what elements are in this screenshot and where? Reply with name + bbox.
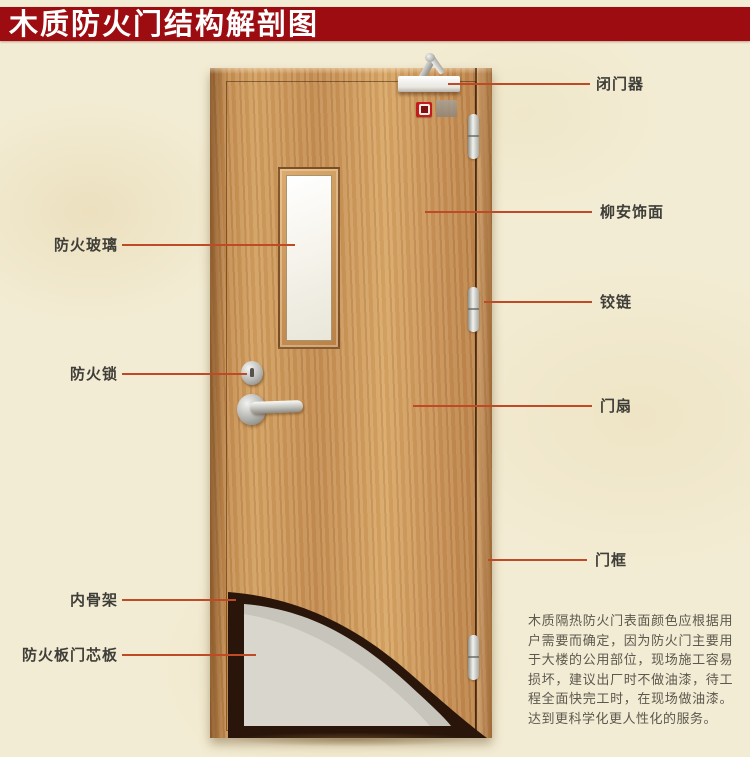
leader-line-door-leaf — [413, 405, 592, 407]
title-banner: 木质防火门结构解剖图 — [0, 7, 750, 41]
fire-glass-pane — [286, 175, 332, 341]
label-veneer: 柳安饰面 — [600, 204, 664, 220]
label-core-board: 防火板门芯板 — [10, 647, 118, 663]
leader-line-fire-lock — [122, 373, 247, 375]
door-floor-shadow — [192, 733, 512, 749]
hinge-middle — [468, 287, 479, 332]
leader-line-inner-skeleton — [122, 599, 236, 601]
fire-alarm-badge — [416, 102, 432, 117]
door-illustration — [210, 68, 492, 738]
door-closer-knuckle — [425, 53, 435, 62]
label-door-closer: 闭门器 — [596, 76, 644, 92]
label-fire-lock: 防火锁 — [18, 366, 118, 382]
door-top-highlight — [210, 68, 492, 74]
leader-line-hinge — [484, 301, 592, 303]
label-plaque — [436, 100, 457, 117]
label-fire-glass: 防火玻璃 — [18, 237, 118, 253]
leader-line-veneer — [425, 211, 592, 213]
hinge-top — [468, 114, 479, 159]
cutaway-section — [210, 580, 492, 738]
label-inner-skeleton: 内骨架 — [18, 592, 118, 608]
label-door-leaf: 门扇 — [600, 398, 632, 414]
poster: 木质防火门结构解剖图 防火玻璃 防火锁 内骨 — [0, 0, 750, 757]
leader-line-door-closer — [448, 83, 590, 85]
leader-line-fire-glass — [122, 244, 295, 246]
leader-line-door-frame — [488, 559, 587, 561]
page-title: 木质防火门结构解剖图 — [0, 7, 750, 41]
fire-glass-window-frame — [278, 167, 340, 349]
description-text: 木质隔热防火门表面颜色应根据用户需要而确定，因为防火门主要用于大楼的公用部位，现… — [528, 612, 733, 729]
door-handle-lever — [250, 400, 303, 414]
label-door-frame: 门框 — [595, 552, 627, 568]
leader-line-core-board — [122, 654, 256, 656]
label-hinge: 铰链 — [600, 294, 632, 310]
